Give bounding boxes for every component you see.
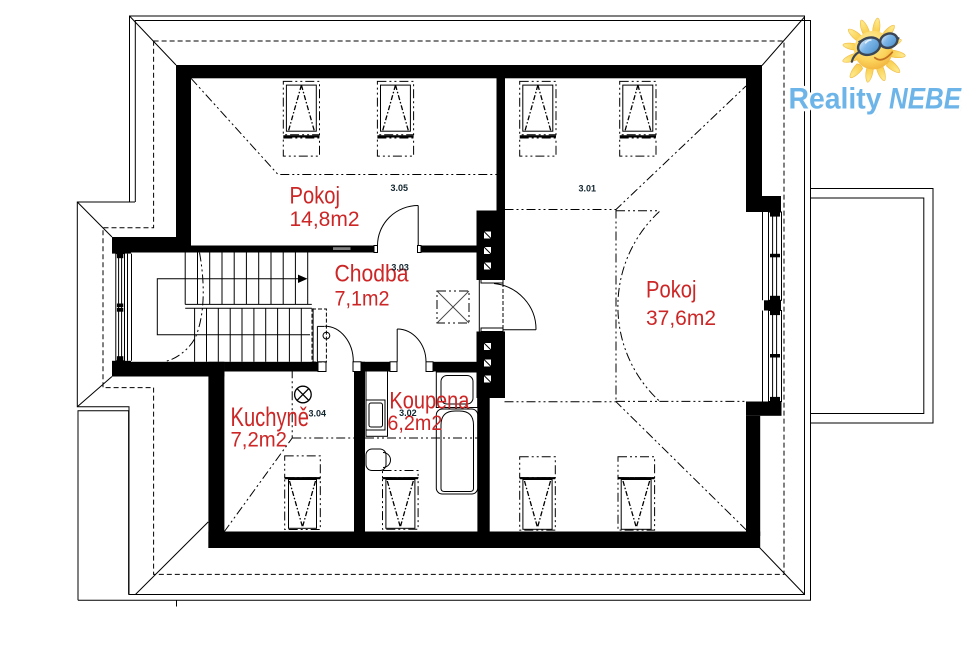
svg-text:14,8m2: 14,8m2 (290, 208, 360, 231)
svg-text:37,6m2: 37,6m2 (646, 307, 716, 330)
svg-text:Kuchyně: Kuchyně (231, 402, 310, 432)
svg-text:3.01: 3.01 (579, 183, 597, 193)
svg-text:7,2m2: 7,2m2 (231, 429, 288, 452)
svg-text:3.02: 3.02 (399, 408, 417, 418)
svg-text:3.04: 3.04 (309, 409, 327, 419)
svg-text:3.05: 3.05 (391, 183, 409, 193)
svg-text:NEBE: NEBE (889, 83, 962, 116)
svg-text:Pokoj: Pokoj (646, 277, 697, 304)
svg-text:Reality: Reality (789, 83, 883, 116)
svg-text:3.03: 3.03 (391, 262, 409, 272)
svg-text:Pokoj: Pokoj (290, 183, 341, 210)
svg-text:7,1m2: 7,1m2 (335, 287, 390, 310)
